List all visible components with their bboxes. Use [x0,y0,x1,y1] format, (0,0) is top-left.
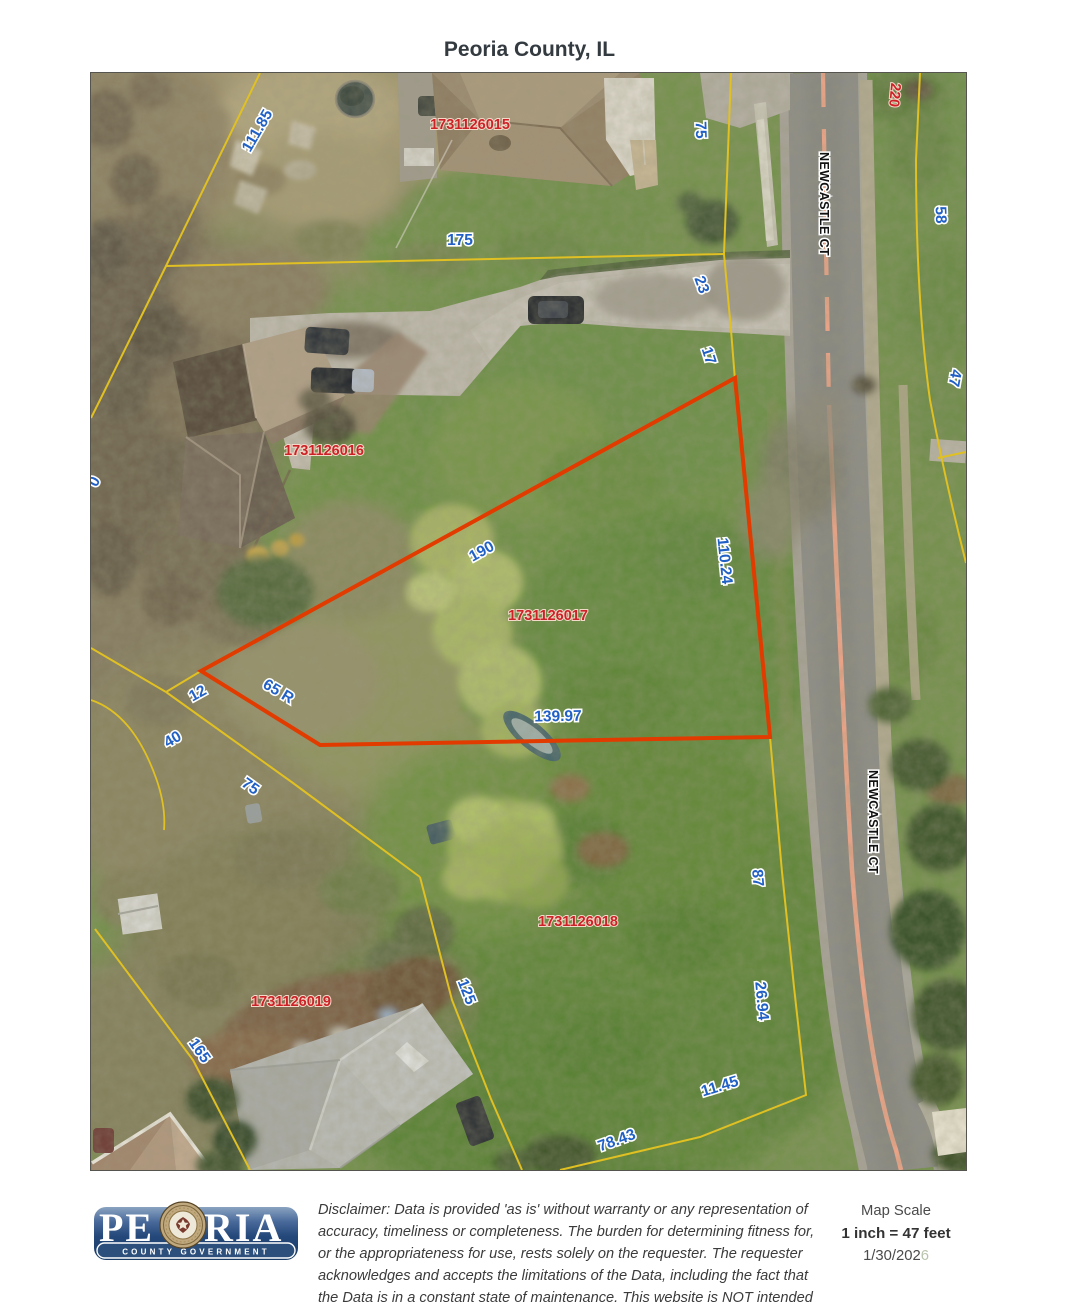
svg-text:1731126017: 1731126017 [508,608,588,624]
svg-text:COUNTY GOVERNMENT: COUNTY GOVERNMENT [122,1248,270,1257]
svg-text:1731126019: 1731126019 [251,994,331,1010]
svg-text:220: 220 [885,82,903,108]
svg-text:47: 47 [945,368,965,388]
svg-text:NEWCASTLE CT: NEWCASTLE CT [866,770,880,874]
svg-text:87: 87 [748,869,766,888]
svg-text:1731126015: 1731126015 [430,117,510,133]
svg-text:1731126018: 1731126018 [538,914,618,930]
svg-text:26.94: 26.94 [751,981,771,1022]
svg-text:1731126016: 1731126016 [284,443,364,459]
svg-text:175: 175 [447,232,473,249]
svg-text:139.97: 139.97 [534,708,582,726]
svg-text:58: 58 [932,206,950,224]
svg-text:NEWCASTLE CT: NEWCASTLE CT [817,152,831,256]
svg-text:75: 75 [692,121,710,139]
